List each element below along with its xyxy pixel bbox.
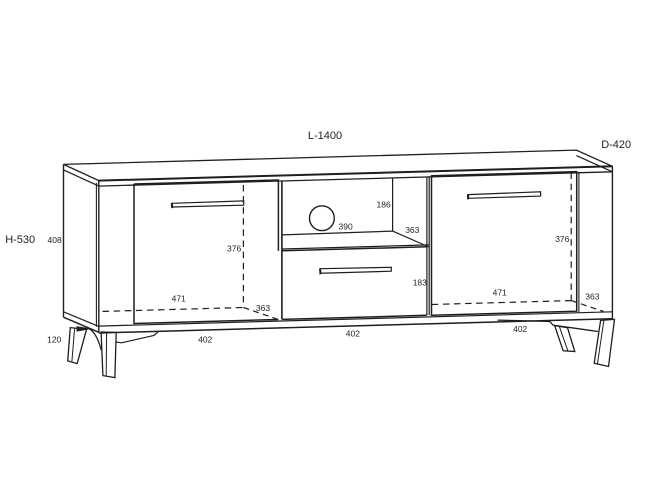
svg-text:186: 186 <box>377 200 391 210</box>
svg-text:471: 471 <box>493 288 507 298</box>
svg-text:D-420: D-420 <box>601 139 631 151</box>
svg-text:H-530: H-530 <box>5 234 35 246</box>
svg-text:183: 183 <box>413 277 427 287</box>
svg-text:120: 120 <box>47 335 61 345</box>
svg-text:402: 402 <box>198 335 212 345</box>
svg-text:363: 363 <box>256 303 270 313</box>
svg-text:L-1400: L-1400 <box>308 130 342 142</box>
svg-text:376: 376 <box>555 234 569 244</box>
svg-text:376: 376 <box>227 244 241 254</box>
svg-text:402: 402 <box>346 329 360 339</box>
svg-text:408: 408 <box>48 235 62 245</box>
svg-text:390: 390 <box>339 221 353 231</box>
svg-text:363: 363 <box>405 225 419 235</box>
svg-text:402: 402 <box>513 324 527 334</box>
svg-text:363: 363 <box>585 291 599 301</box>
svg-text:471: 471 <box>172 294 186 304</box>
